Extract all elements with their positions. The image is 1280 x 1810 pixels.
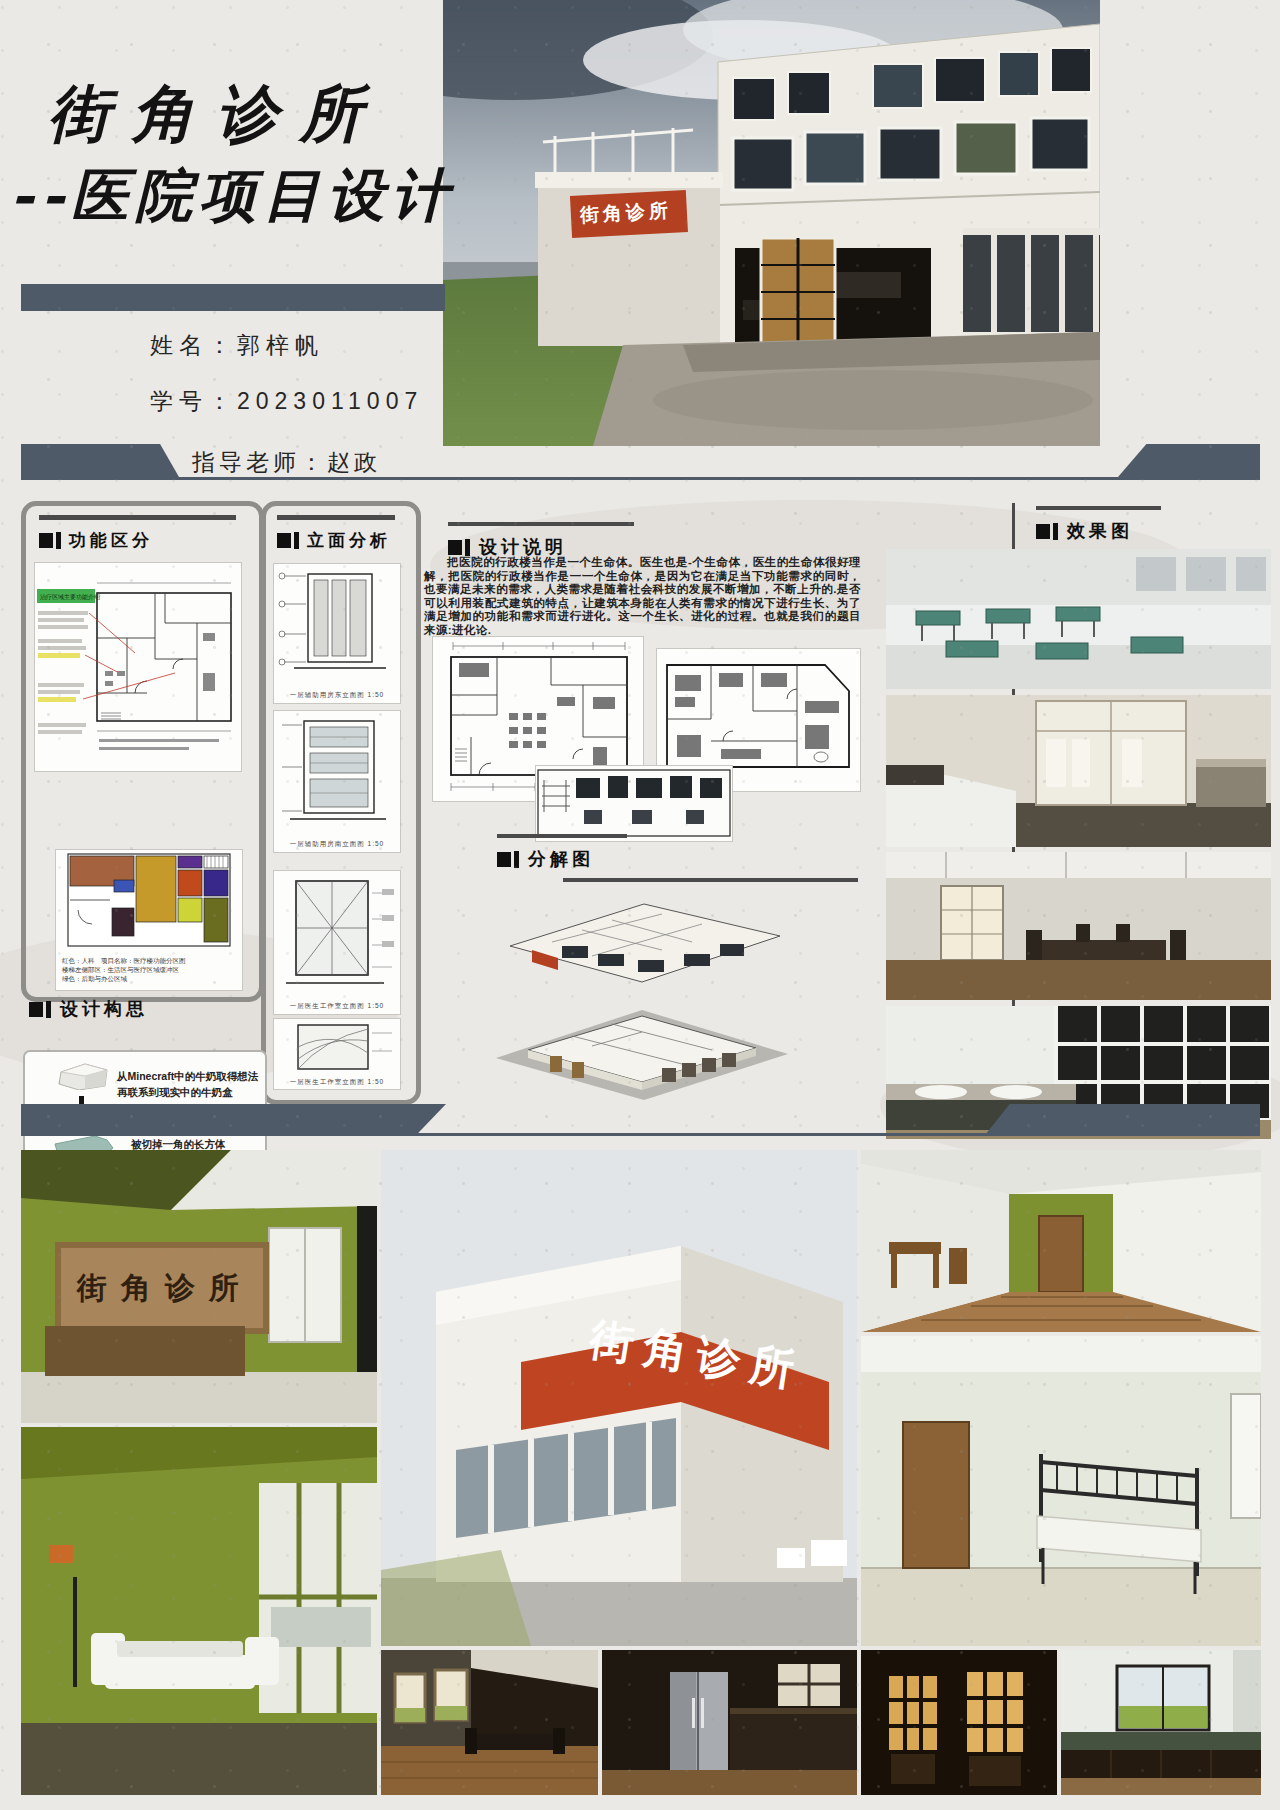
poster-canvas: 街角诊所 街角诊所 --医院项目设计 姓名：郭梓帆 学号：2023011007 … [0, 0, 1280, 1810]
concept-title: 设计构思 [60, 997, 148, 1021]
render-therapy-room [886, 549, 1271, 689]
exploded-rule [563, 878, 858, 882]
photo-exterior-corner: 街角诊所 [381, 1150, 857, 1646]
renderings-header: 效果图 [1036, 506, 1161, 543]
bottom-banner-left [21, 1104, 446, 1135]
section-marker-icon [448, 539, 470, 556]
section-marker-icon [39, 532, 61, 549]
functional-zoning-box: 功能区分 治疗区域主要功能介绍 [21, 501, 264, 1002]
functional-header-bar [39, 515, 236, 520]
functional-plan-diagram: 治疗区域主要功能介绍 [34, 562, 242, 772]
student-id: 学号：2023011007 [150, 386, 423, 417]
reception-clinic-sign: 街角诊所 [77, 1268, 253, 1309]
photo-corridor [861, 1150, 1261, 1332]
elevation-caption: 一层医生工作室立面图 1:50 [274, 1078, 400, 1087]
hero-building-render: 街角诊所 [443, 0, 1100, 446]
poster-title-line1: 街角诊所 [48, 72, 384, 156]
color-zoning-plan: 红色：人科 项目名称：医疗楼功能分区图 楼梯左侧部区：生活区与医疗区域缓冲区 绿… [55, 849, 243, 991]
student-name: 姓名：郭梓帆 [150, 330, 324, 361]
exploded-header: 分解图 [497, 834, 627, 871]
exploded-header-bar [497, 834, 627, 838]
elevation-header-bar [277, 515, 395, 520]
functional-title: 功能区分 [69, 529, 153, 552]
elevation-drawing-1: 一层辅助用房东立面图 1:50 [273, 563, 401, 704]
zoning-legend-line: 红色：人科 项目名称：医疗楼功能分区图 [62, 956, 186, 965]
advisor: 指导老师：赵政 [192, 447, 381, 478]
zoning-legend-line: 绿色：后勤与办公区域 [62, 974, 186, 983]
description-header: 设计说明 [448, 522, 634, 559]
photo-bedroom-metal-bed [861, 1336, 1261, 1646]
photo-dark-window-room [861, 1650, 1057, 1795]
photo-dining-windows [381, 1650, 598, 1795]
description-title: 设计说明 [479, 535, 567, 559]
banner-left-shape [21, 444, 179, 477]
elevation-caption: 一层辅助用房南立面图 1:50 [274, 840, 400, 849]
elevation-caption: 一层辅助用房东立面图 1:50 [274, 691, 400, 700]
photo-kitchen-fridge [602, 1650, 857, 1795]
bottom-banner-right [985, 1104, 1260, 1135]
description-body: 把医院的行政楼当作是一个生命体。医生也是-个生命体，医生的生命体很好理解，把医院… [424, 556, 861, 637]
renderings-title: 效果图 [1067, 519, 1133, 543]
plan-green-note: 治疗区域主要功能介绍 [40, 593, 100, 601]
elevation-analysis-box: 立面分析 一层辅助用房东立面图 1:50 一层辅助用房南立面图 1:50 [261, 501, 421, 1105]
photo-kitchen-corner [1061, 1650, 1261, 1795]
exploded-roof-strip [535, 765, 733, 842]
render-bedroom-wardrobe [886, 695, 1271, 847]
exploded-axon-roof [492, 884, 792, 988]
concept-header: 设计构思 [29, 997, 148, 1021]
hero-clinic-sign: 街角诊所 [579, 198, 672, 229]
render-dining-room [886, 852, 1271, 1000]
section-marker-icon [1036, 523, 1058, 540]
description-header-bar [448, 522, 634, 526]
elevation-drawing-3: 一层医生工作室立面图 1:50 [273, 870, 401, 1015]
exploded-title: 分解图 [528, 847, 594, 871]
section-marker-icon [497, 851, 519, 868]
elevation-drawing-4: 一层医生工作室立面图 1:50 [273, 1018, 401, 1090]
photo-lounge-interior [21, 1427, 377, 1795]
elevation-title: 立面分析 [307, 529, 391, 552]
banner-right-shape [1118, 444, 1260, 477]
concept-step1-line1: 从Minecraft中的牛奶取得想法 [117, 1070, 258, 1084]
concept-step1-line2: 再联系到现实中的牛奶盒 [117, 1086, 233, 1100]
photo-reception-interior: 街角诊所 [21, 1150, 377, 1423]
section-marker-icon [29, 1001, 51, 1018]
title-divider-bar [21, 284, 445, 311]
hero-building-art [443, 0, 1100, 446]
milk-carton-icon [55, 1060, 111, 1090]
elevation-caption: 一层医生工作室立面图 1:50 [274, 1002, 400, 1011]
zoning-legend-line: 楼梯左侧部区：生活区与医疗区域缓冲区 [62, 965, 186, 974]
exploded-axon-walls [492, 988, 792, 1100]
poster-title-line2: --医院项目设计 [10, 158, 455, 235]
section-marker-icon [277, 532, 299, 549]
elevation-drawing-2: 一层辅助用房南立面图 1:50 [273, 710, 401, 853]
banner-rule [21, 477, 1260, 480]
renderings-header-bar [1036, 506, 1161, 510]
